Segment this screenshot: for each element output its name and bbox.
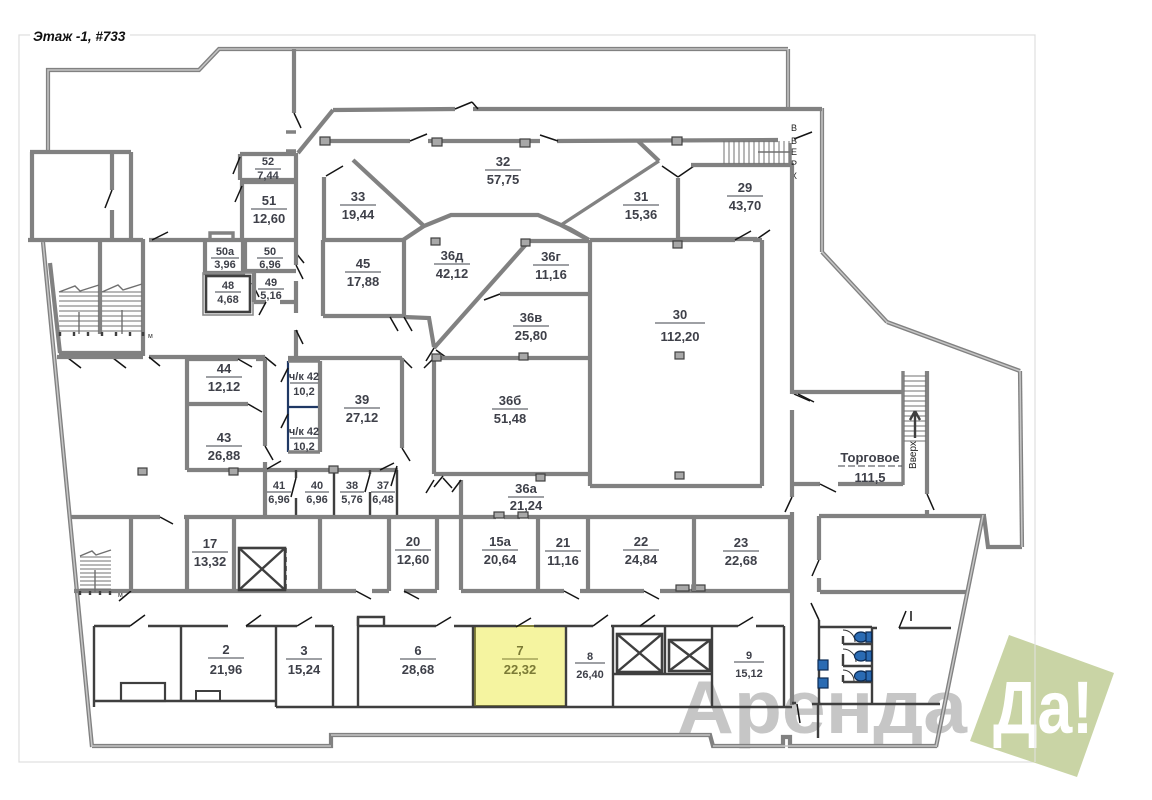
svg-text:ч/к 42: ч/к 42 [289, 426, 319, 438]
svg-text:26,40: 26,40 [576, 669, 604, 681]
svg-text:52: 52 [262, 156, 274, 168]
svg-text:45: 45 [356, 256, 370, 271]
svg-text:10,2: 10,2 [293, 441, 314, 453]
svg-text:111,5: 111,5 [854, 470, 885, 485]
svg-text:50: 50 [264, 246, 276, 258]
svg-text:15,12: 15,12 [735, 668, 763, 680]
svg-text:6,96: 6,96 [268, 494, 289, 506]
svg-text:32: 32 [496, 154, 510, 169]
svg-text:Да!: Да! [993, 666, 1093, 749]
svg-text:8: 8 [587, 651, 593, 663]
svg-text:22,68: 22,68 [725, 553, 758, 568]
svg-text:50а: 50а [216, 246, 235, 258]
svg-text:7,44: 7,44 [257, 170, 279, 182]
svg-text:42,12: 42,12 [436, 266, 469, 281]
svg-text:15а: 15а [489, 534, 511, 549]
svg-text:4,68: 4,68 [217, 294, 238, 306]
svg-text:15,36: 15,36 [625, 207, 658, 222]
svg-text:43: 43 [217, 430, 231, 445]
svg-text:20,64: 20,64 [484, 552, 517, 567]
svg-text:33: 33 [351, 189, 365, 204]
svg-text:7: 7 [516, 643, 523, 658]
svg-text:В: В [791, 136, 797, 146]
svg-text:ч/к 42: ч/к 42 [289, 371, 319, 383]
svg-text:36в: 36в [520, 310, 542, 325]
svg-text:36а: 36а [515, 481, 537, 496]
svg-text:11,16: 11,16 [547, 553, 579, 568]
svg-text:22: 22 [634, 534, 648, 549]
svg-text:28,68: 28,68 [402, 662, 435, 677]
svg-text:51,48: 51,48 [494, 411, 527, 426]
svg-text:31: 31 [634, 189, 648, 204]
svg-text:3: 3 [300, 643, 307, 658]
svg-text:36б: 36б [499, 393, 522, 408]
svg-text:6,48: 6,48 [372, 494, 393, 506]
svg-text:21: 21 [556, 535, 570, 550]
svg-text:21,24: 21,24 [510, 498, 543, 513]
svg-text:27,12: 27,12 [346, 410, 379, 425]
svg-text:12,60: 12,60 [253, 211, 286, 226]
svg-text:37: 37 [377, 480, 389, 492]
svg-text:6,96: 6,96 [306, 494, 327, 506]
svg-text:12,12: 12,12 [208, 379, 241, 394]
svg-text:17,88: 17,88 [347, 274, 380, 289]
svg-text:Торговое: Торговое [840, 450, 899, 465]
svg-text:м: м [148, 333, 153, 340]
svg-text:10,2: 10,2 [293, 386, 314, 398]
svg-text:м: м [118, 592, 123, 599]
svg-text:22,32: 22,32 [504, 662, 537, 677]
svg-text:36д: 36д [441, 248, 464, 263]
svg-text:39: 39 [355, 392, 369, 407]
svg-text:11,16: 11,16 [535, 267, 567, 282]
svg-text:23: 23 [734, 535, 748, 550]
svg-text:2: 2 [222, 642, 229, 657]
svg-text:48: 48 [222, 280, 234, 292]
svg-text:43,70: 43,70 [729, 198, 762, 213]
svg-text:5,16: 5,16 [260, 290, 281, 302]
svg-text:20: 20 [406, 534, 420, 549]
svg-text:25,80: 25,80 [515, 328, 548, 343]
svg-text:29: 29 [738, 180, 752, 195]
svg-text:6: 6 [414, 643, 421, 658]
svg-text:24,84: 24,84 [625, 552, 658, 567]
svg-text:40: 40 [311, 480, 323, 492]
svg-text:30: 30 [673, 307, 687, 322]
svg-text:6,96: 6,96 [259, 259, 280, 271]
svg-text:17: 17 [203, 536, 217, 551]
svg-text:19,44: 19,44 [342, 207, 375, 222]
svg-text:51: 51 [262, 193, 276, 208]
svg-text:3,96: 3,96 [214, 259, 235, 271]
svg-text:38: 38 [346, 480, 358, 492]
svg-text:21,96: 21,96 [210, 662, 243, 677]
svg-text:26,88: 26,88 [208, 448, 241, 463]
svg-text:112,20: 112,20 [660, 329, 699, 344]
svg-text:36г: 36г [541, 249, 561, 264]
svg-text:44: 44 [217, 361, 232, 376]
svg-text:Этаж -1, #733: Этаж -1, #733 [33, 29, 126, 44]
svg-text:13,32: 13,32 [194, 554, 227, 569]
svg-text:41: 41 [273, 480, 285, 492]
svg-text:5,76: 5,76 [341, 494, 362, 506]
svg-text:15,24: 15,24 [288, 662, 321, 677]
svg-text:12,60: 12,60 [397, 552, 430, 567]
svg-text:57,75: 57,75 [487, 172, 520, 187]
svg-text:Вверх: Вверх [908, 441, 919, 469]
svg-text:49: 49 [265, 277, 277, 289]
svg-text:Е: Е [791, 147, 797, 157]
svg-text:В: В [791, 123, 797, 133]
svg-text:9: 9 [746, 650, 752, 662]
